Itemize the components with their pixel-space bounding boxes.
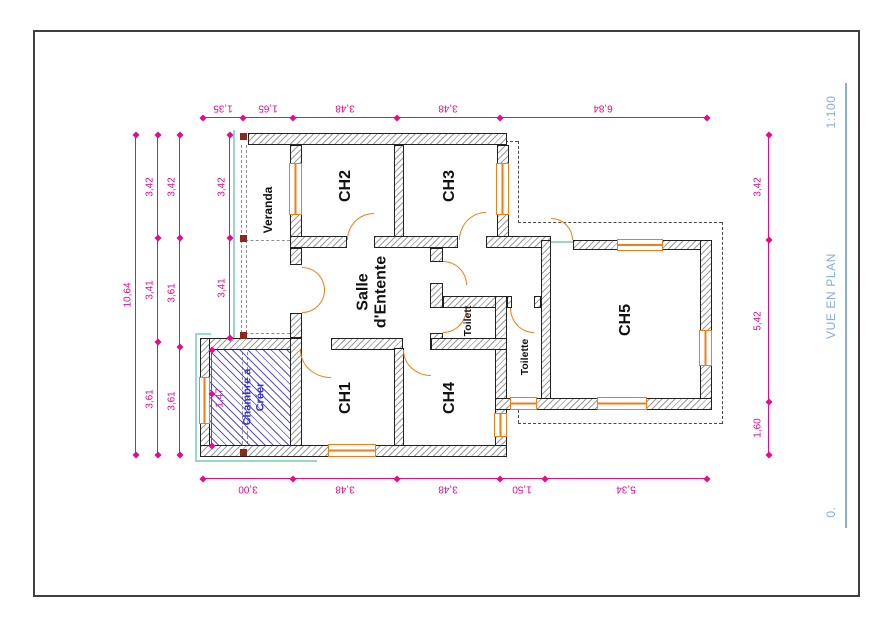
dim-top-4: 6,84 xyxy=(593,103,612,114)
room-label-salle-line1: Salle xyxy=(355,273,372,310)
post xyxy=(240,133,247,140)
view-title: VUE EN PLAN xyxy=(824,253,838,339)
dim-left-inner-0: 3,42 xyxy=(217,177,228,196)
wall xyxy=(290,248,302,265)
room-label-chambre-line1: Chambre a xyxy=(241,369,253,426)
dim-top-3: 3,48 xyxy=(438,103,457,114)
dim-left-a-1: 3,41 xyxy=(145,280,156,299)
dim-left-b-0: 3,42 xyxy=(167,177,178,196)
dashed-veranda-line xyxy=(240,333,290,334)
dim-line-left-total xyxy=(135,135,136,455)
wall xyxy=(394,348,404,457)
window xyxy=(496,163,509,215)
dim-line-right xyxy=(768,135,769,455)
room-label-ch4: CH4 xyxy=(441,382,459,414)
dashed-boundary xyxy=(518,141,519,223)
window xyxy=(510,397,537,410)
dashed-veranda-line xyxy=(240,240,290,241)
room-label-salle-line2: d'Entente xyxy=(373,256,390,328)
room-label-ch1: CH1 xyxy=(337,382,355,414)
wall xyxy=(290,236,347,248)
dim-line-top xyxy=(203,117,707,118)
room-label-chambre-a-creer: Chambre a Créer xyxy=(241,369,266,426)
dim-right-1: 5,42 xyxy=(753,311,764,330)
room-label-toilett: Toilett xyxy=(462,306,474,337)
wall xyxy=(507,296,512,308)
dim-top-1: 1,65 xyxy=(258,103,277,114)
room-label-ch2: CH2 xyxy=(337,170,355,202)
post xyxy=(240,332,247,339)
window xyxy=(328,444,376,457)
dim-left-total: 10,64 xyxy=(123,282,134,307)
dim-right-2: 1,60 xyxy=(753,418,764,437)
wall xyxy=(541,240,551,410)
dim-left-b-1: 3,61 xyxy=(167,283,178,302)
floor-plan-canvas: 1,35 1,65 3,48 3,48 6,84 3,00 3,48 3,48 … xyxy=(0,0,890,630)
scale-text: 1:100 xyxy=(824,95,838,128)
room-label-chambre-line2: Créer xyxy=(254,383,266,412)
teal-outline-chambre-left xyxy=(195,333,197,462)
post xyxy=(240,449,247,456)
wall xyxy=(431,338,507,350)
room-label-ch5: CH5 xyxy=(617,304,635,336)
wall xyxy=(700,240,712,410)
window xyxy=(199,377,210,424)
dim-left-b-2: 3,61 xyxy=(167,391,178,410)
wall xyxy=(430,283,443,308)
dim-top-2: 3,48 xyxy=(335,103,354,114)
annotation-rule xyxy=(845,83,847,528)
teal-door-threshold xyxy=(551,241,573,243)
dim-bottom-4: 5,34 xyxy=(616,484,635,495)
dim-line-chambre xyxy=(211,350,212,446)
window xyxy=(597,397,647,410)
dashed-boundary xyxy=(722,222,723,424)
dim-line-left-a xyxy=(157,135,158,455)
dim-bottom-3: 1,50 xyxy=(512,484,531,495)
teal-outline-chambre-bottom xyxy=(195,460,317,462)
dim-left-a-2: 3,61 xyxy=(145,389,156,408)
dim-left-inner-1: 3,41 xyxy=(217,278,228,297)
dim-right-0: 3,42 xyxy=(753,177,764,196)
dashed-boundary xyxy=(518,423,722,424)
room-label-salle: Salle d'Entente xyxy=(355,256,392,328)
room-label-veranda: Veranda xyxy=(261,187,275,234)
wall xyxy=(290,313,302,338)
dim-line-bottom xyxy=(203,478,707,479)
window xyxy=(699,330,712,366)
dim-top-0: 1,35 xyxy=(213,103,232,114)
room-label-ch3: CH3 xyxy=(441,170,459,202)
dim-bottom-0: 3,00 xyxy=(238,484,257,495)
wall xyxy=(534,296,541,308)
wall xyxy=(394,145,404,238)
teal-outline-chambre-top xyxy=(195,333,211,335)
wall xyxy=(248,133,507,145)
window xyxy=(494,413,507,437)
wall xyxy=(430,248,443,262)
level-text: 0. xyxy=(824,506,838,517)
post xyxy=(240,235,247,242)
dashed-boundary xyxy=(518,222,722,223)
dim-bottom-2: 3,48 xyxy=(438,484,457,495)
wall xyxy=(374,236,458,248)
dim-left-a-0: 3,42 xyxy=(145,177,156,196)
dim-chambre-height: 1,47 xyxy=(215,388,226,407)
wall xyxy=(331,338,403,350)
teal-outline-veranda xyxy=(233,130,235,340)
wall xyxy=(200,338,300,350)
dim-bottom-1: 3,48 xyxy=(335,484,354,495)
room-label-toilette: Toilette xyxy=(519,339,531,376)
window xyxy=(289,163,302,215)
dim-line-left-b xyxy=(179,135,180,455)
window xyxy=(617,239,663,251)
